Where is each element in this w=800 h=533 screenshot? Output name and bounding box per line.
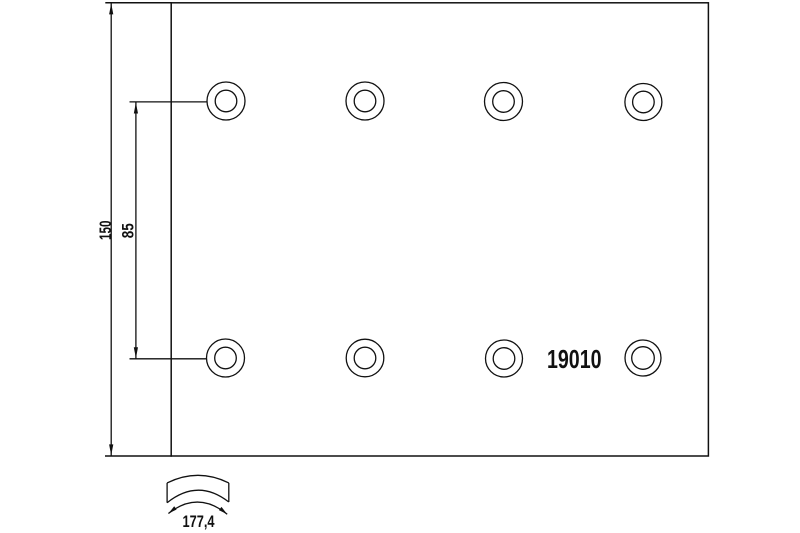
svg-text:19010: 19010	[547, 344, 602, 374]
svg-text:85: 85	[118, 223, 137, 238]
svg-text:177,4: 177,4	[183, 513, 216, 531]
svg-text:150: 150	[96, 221, 115, 241]
